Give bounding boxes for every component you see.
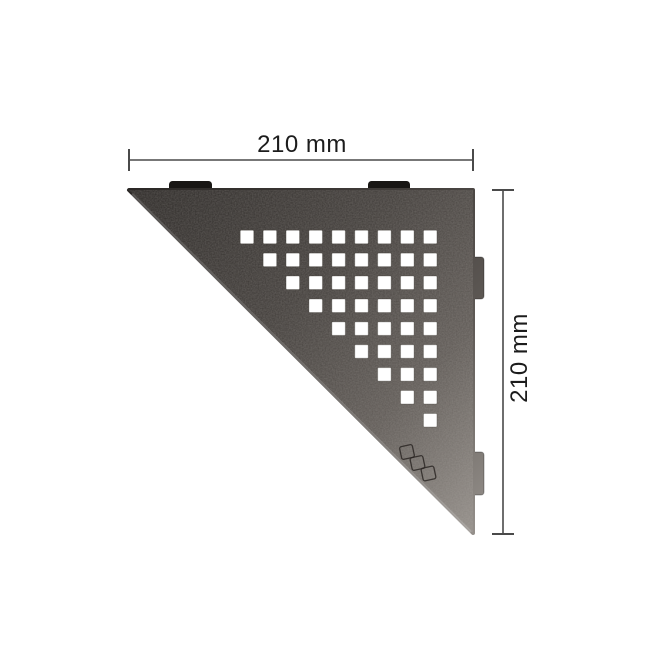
perforation-hole [378,230,392,244]
perforation-hole [309,299,323,313]
perforation-hole [332,230,346,244]
perforation-hole [240,230,254,244]
perforation-hole [286,230,300,244]
perforation-hole [401,253,415,267]
perforation-hole [423,276,437,290]
perforation-hole [423,299,437,313]
perforation-hole [423,391,437,405]
perforation-hole [355,322,369,336]
perforation-hole [309,253,323,267]
perforation-hole [378,345,392,359]
perforation-hole [355,299,369,313]
right-dimension-label: 210 mm [506,313,533,403]
perforation-hole [401,322,415,336]
perforation-hole [378,299,392,313]
perforation-hole [401,368,415,382]
perforation-hole [378,276,392,290]
product-dimension-diagram: 210 mm 210 mm [0,0,660,660]
perforation-hole [401,230,415,244]
perforation-hole [378,368,392,382]
perforation-hole [401,276,415,290]
perforation-hole [401,391,415,405]
perforation-hole [355,276,369,290]
perforation-hole [286,253,300,267]
perforation-hole [355,345,369,359]
perforation-hole [263,253,277,267]
perforation-hole [401,299,415,313]
perforation-hole [423,345,437,359]
perforation-hole [309,276,323,290]
perforation-hole [355,230,369,244]
perforation-hole [401,345,415,359]
perforation-hole [378,253,392,267]
diagram-svg: 210 mm 210 mm [0,0,660,660]
perforation-hole [263,230,277,244]
perforation-hole [332,276,346,290]
perforation-hole [423,230,437,244]
perforation-hole [423,322,437,336]
top-dimension-callout: 210 mm [129,131,473,171]
perforation-hole [332,322,346,336]
corner-shelf [129,181,484,533]
right-dimension-callout: 210 mm [492,190,533,534]
perforation-hole [423,413,437,427]
perforation-hole [309,230,323,244]
perforation-hole [355,253,369,267]
perforation-hole [332,299,346,313]
top-dimension-label: 210 mm [257,131,347,158]
perforation-hole [378,322,392,336]
perforation-hole [423,253,437,267]
perforation-hole [332,253,346,267]
perforation-hole [423,368,437,382]
perforation-hole [286,276,300,290]
